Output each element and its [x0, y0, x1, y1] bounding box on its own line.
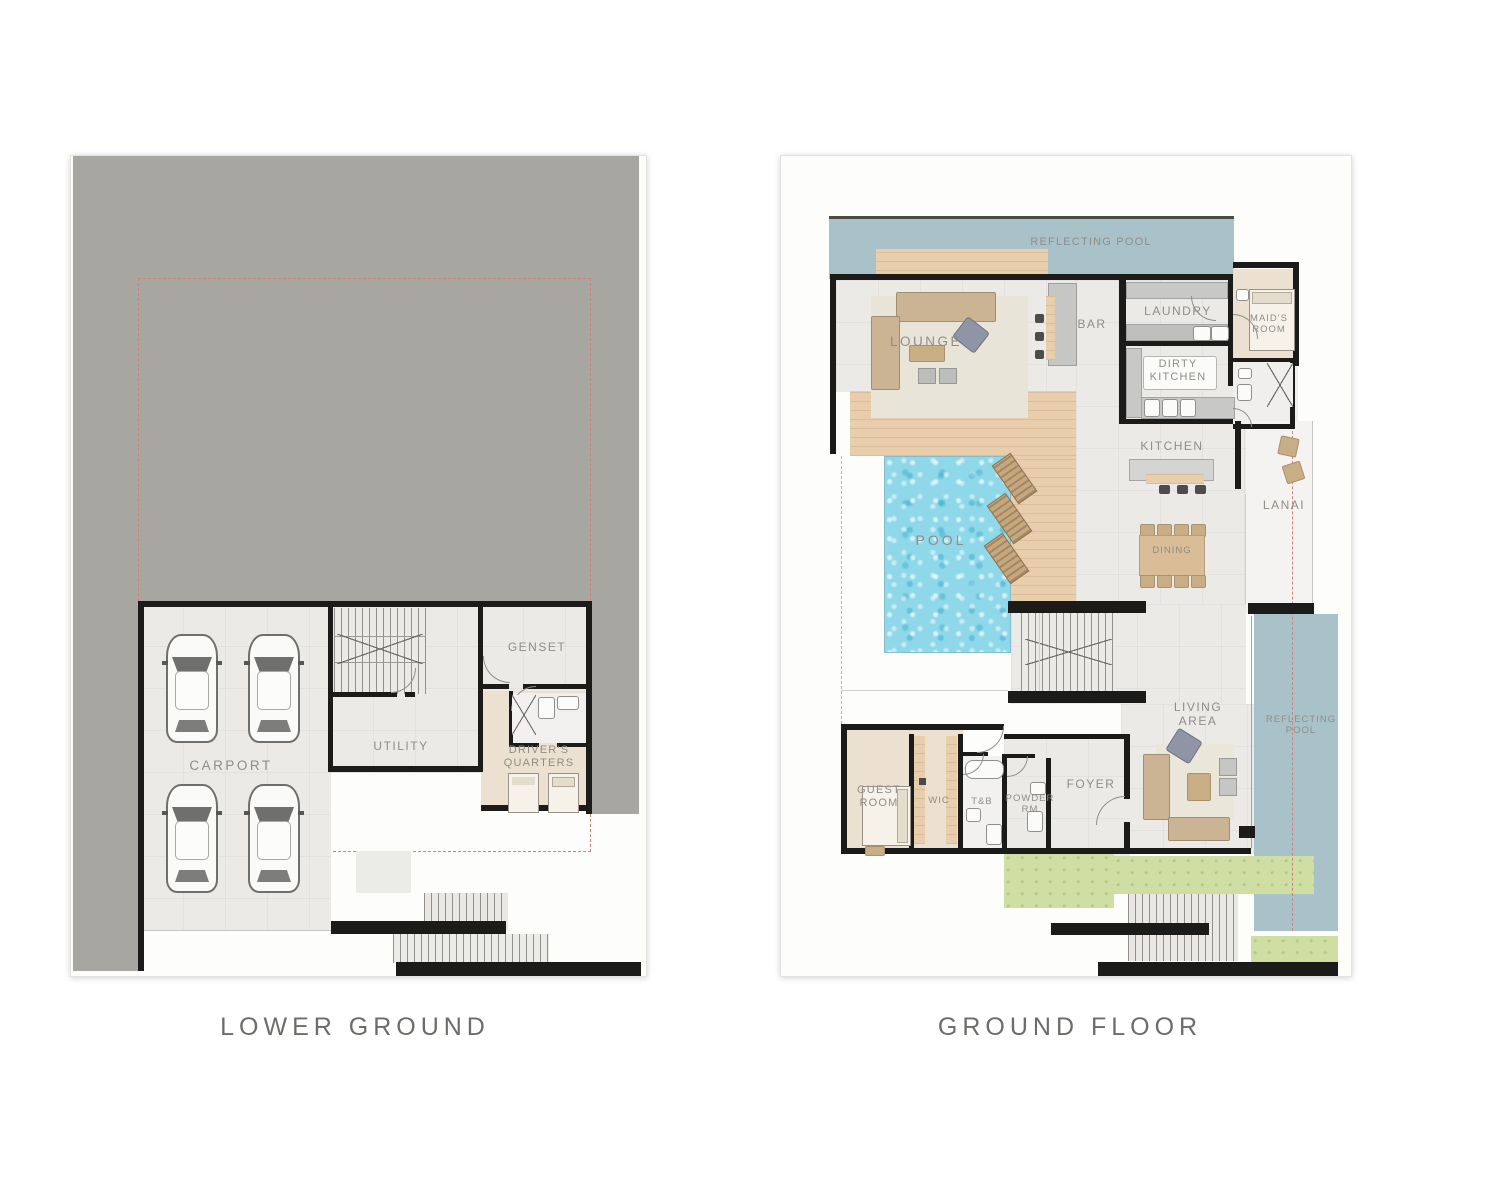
site-area: [587, 604, 639, 814]
wall-segment: [138, 601, 144, 971]
retaining-wall: [1051, 923, 1209, 935]
sink-icon: [557, 696, 579, 710]
wall-segment: [138, 601, 592, 607]
appliance-icon: [1162, 399, 1178, 417]
shower-icon: [512, 695, 536, 735]
room-label-drivers-quarters: DRIVER'SQUARTERS: [477, 744, 601, 770]
room-label-carport: CARPORT: [171, 759, 291, 773]
kitchen-stool: [1159, 485, 1170, 494]
room-label-reflecting-pool-side: REFLECTINGPOOL: [1251, 714, 1351, 736]
wall-segment: [1248, 603, 1314, 614]
room-label-utility: UTILITY: [351, 739, 451, 753]
wall-segment: [328, 604, 333, 772]
room-label-reflecting-pool-top: REFLECTING POOL: [1021, 236, 1161, 249]
wall-segment: [1008, 601, 1146, 613]
armchair-icon: [1277, 435, 1300, 458]
bar-stool: [1035, 350, 1044, 359]
exterior-landing: [356, 851, 411, 893]
sofa-icon: [1168, 817, 1230, 841]
room-label-dirty-kitchen: DIRTYKITCHEN: [1128, 358, 1228, 384]
wall-segment: [1239, 826, 1255, 838]
appliance-icon: [1211, 326, 1229, 341]
ottoman: [918, 368, 936, 384]
label-line: AREA: [1179, 714, 1218, 728]
bed-icon: [508, 773, 539, 813]
floor-plan-sheet: CARPORT UTILITY GENSET DRIVER'SQUARTERS: [0, 0, 1500, 1200]
label-line: POOL: [1286, 725, 1316, 736]
lawn: [1114, 856, 1314, 894]
label-line: REFLECTING: [1266, 714, 1336, 725]
kitchen-stool: [1177, 485, 1188, 494]
car-icon: [166, 634, 218, 743]
label-line: DIRTY: [1159, 358, 1198, 370]
wall-segment: [1008, 691, 1146, 703]
floor-edge-line: [1039, 613, 1040, 691]
closet-handle: [919, 778, 926, 785]
toilet-icon: [538, 697, 555, 719]
room-label-bar: BAR: [1062, 317, 1122, 331]
ground-floor-plan: REFLECTING POOL LOUNGE BAR LAUNDRY DIRTY…: [780, 155, 1352, 977]
label-line: DRIVER'S: [509, 744, 570, 756]
wall-segment: [1124, 822, 1130, 848]
retaining-wall: [396, 962, 641, 976]
wall-segment: [841, 848, 1251, 854]
stair-direction-cross: [337, 634, 423, 664]
toilet-icon: [1237, 384, 1252, 401]
room-label-dining: DINING: [1132, 545, 1212, 556]
wall-segment: [1119, 274, 1126, 424]
car-icon: [166, 784, 218, 893]
bar-stool: [1035, 332, 1044, 341]
room-label-lounge: LOUNGE: [866, 335, 986, 349]
label-line: GUEST: [857, 784, 901, 796]
label-line: MAID'S: [1250, 313, 1288, 324]
dining-chair: [1174, 575, 1189, 588]
sink-icon: [1238, 368, 1252, 379]
label-line: LIVING: [1174, 700, 1222, 714]
dining-chair: [1157, 575, 1172, 588]
wall-segment: [1233, 262, 1299, 268]
sofa-icon: [896, 292, 996, 322]
setback-line: [841, 456, 843, 724]
appliance-icon: [1180, 399, 1196, 417]
side-table: [1236, 289, 1249, 301]
wall-segment: [1235, 421, 1241, 489]
bed-icon: [548, 773, 579, 813]
room-label-foyer: FOYER: [1051, 777, 1131, 791]
bar-stool: [1035, 314, 1044, 323]
wall-segment: [1004, 734, 1130, 739]
sink-icon: [966, 808, 981, 822]
appliance-icon: [1193, 326, 1211, 341]
dining-chair: [1191, 575, 1206, 588]
toilet-icon: [986, 824, 1002, 845]
lower-ground-plan: CARPORT UTILITY GENSET DRIVER'SQUARTERS: [70, 155, 647, 977]
room-label-kitchen: KITCHEN: [1112, 439, 1232, 453]
label-line: KITCHEN: [1150, 371, 1207, 383]
plan-title-lower-ground: LOWER GROUND: [205, 1012, 505, 1042]
retaining-wall: [1098, 962, 1338, 976]
dining-chair: [1140, 575, 1155, 588]
wall-segment: [830, 274, 1233, 280]
sofa-icon: [871, 316, 900, 390]
room-label-lanai: LANAI: [1244, 498, 1324, 512]
appliance-icon: [1144, 399, 1160, 417]
plan-title-ground-floor: GROUND FLOOR: [920, 1012, 1220, 1042]
wall-segment: [1233, 358, 1293, 362]
setback-line: [841, 690, 1008, 691]
site-area: [73, 604, 141, 971]
bar-counter-front: [1046, 296, 1055, 360]
coffee-table: [1187, 773, 1211, 801]
room-label-living-area: LIVINGAREA: [1148, 700, 1248, 728]
wall-segment: [405, 692, 415, 697]
bench-icon: [865, 846, 885, 856]
car-icon: [248, 634, 300, 743]
label-line: QUARTERS: [504, 757, 575, 769]
room-label-pool: POOL: [891, 533, 991, 547]
exterior-steps: [393, 934, 549, 963]
wall-segment: [481, 684, 509, 689]
label-line: ROOM: [859, 797, 898, 809]
ottoman: [1219, 758, 1237, 776]
shower-icon: [1267, 363, 1293, 407]
sofa-icon: [1143, 754, 1170, 820]
wall-segment: [1119, 419, 1233, 424]
carport-edge-line: [141, 930, 331, 931]
closet-icon: [946, 736, 957, 844]
ottoman: [939, 368, 957, 384]
retaining-wall: [331, 921, 506, 934]
wall-segment: [333, 692, 397, 697]
kitchen-island-front: [1146, 473, 1204, 484]
room-label-maids-room: MAID'SROOM: [1229, 313, 1309, 335]
wall-segment: [830, 274, 836, 454]
wall-segment: [586, 601, 592, 814]
label-line: POWDER: [1006, 793, 1055, 804]
pool-edge-wall: [829, 216, 1234, 219]
kitchen-stool: [1195, 485, 1206, 494]
door-swing: [977, 726, 1004, 753]
lawn: [1251, 936, 1338, 963]
room-label-powder-rm: POWDERRM: [1000, 793, 1060, 815]
room-label-genset: GENSET: [487, 640, 587, 654]
room-label-laundry: LAUNDRY: [1118, 304, 1238, 318]
room-label-guest-room: GUESTROOM: [839, 784, 919, 810]
label-line: RM: [1022, 804, 1039, 815]
ottoman: [1219, 778, 1237, 796]
lawn: [1004, 853, 1114, 908]
car-icon: [248, 784, 300, 893]
wall-segment: [1126, 341, 1233, 346]
wall-segment: [328, 766, 483, 772]
label-line: ROOM: [1252, 324, 1286, 335]
